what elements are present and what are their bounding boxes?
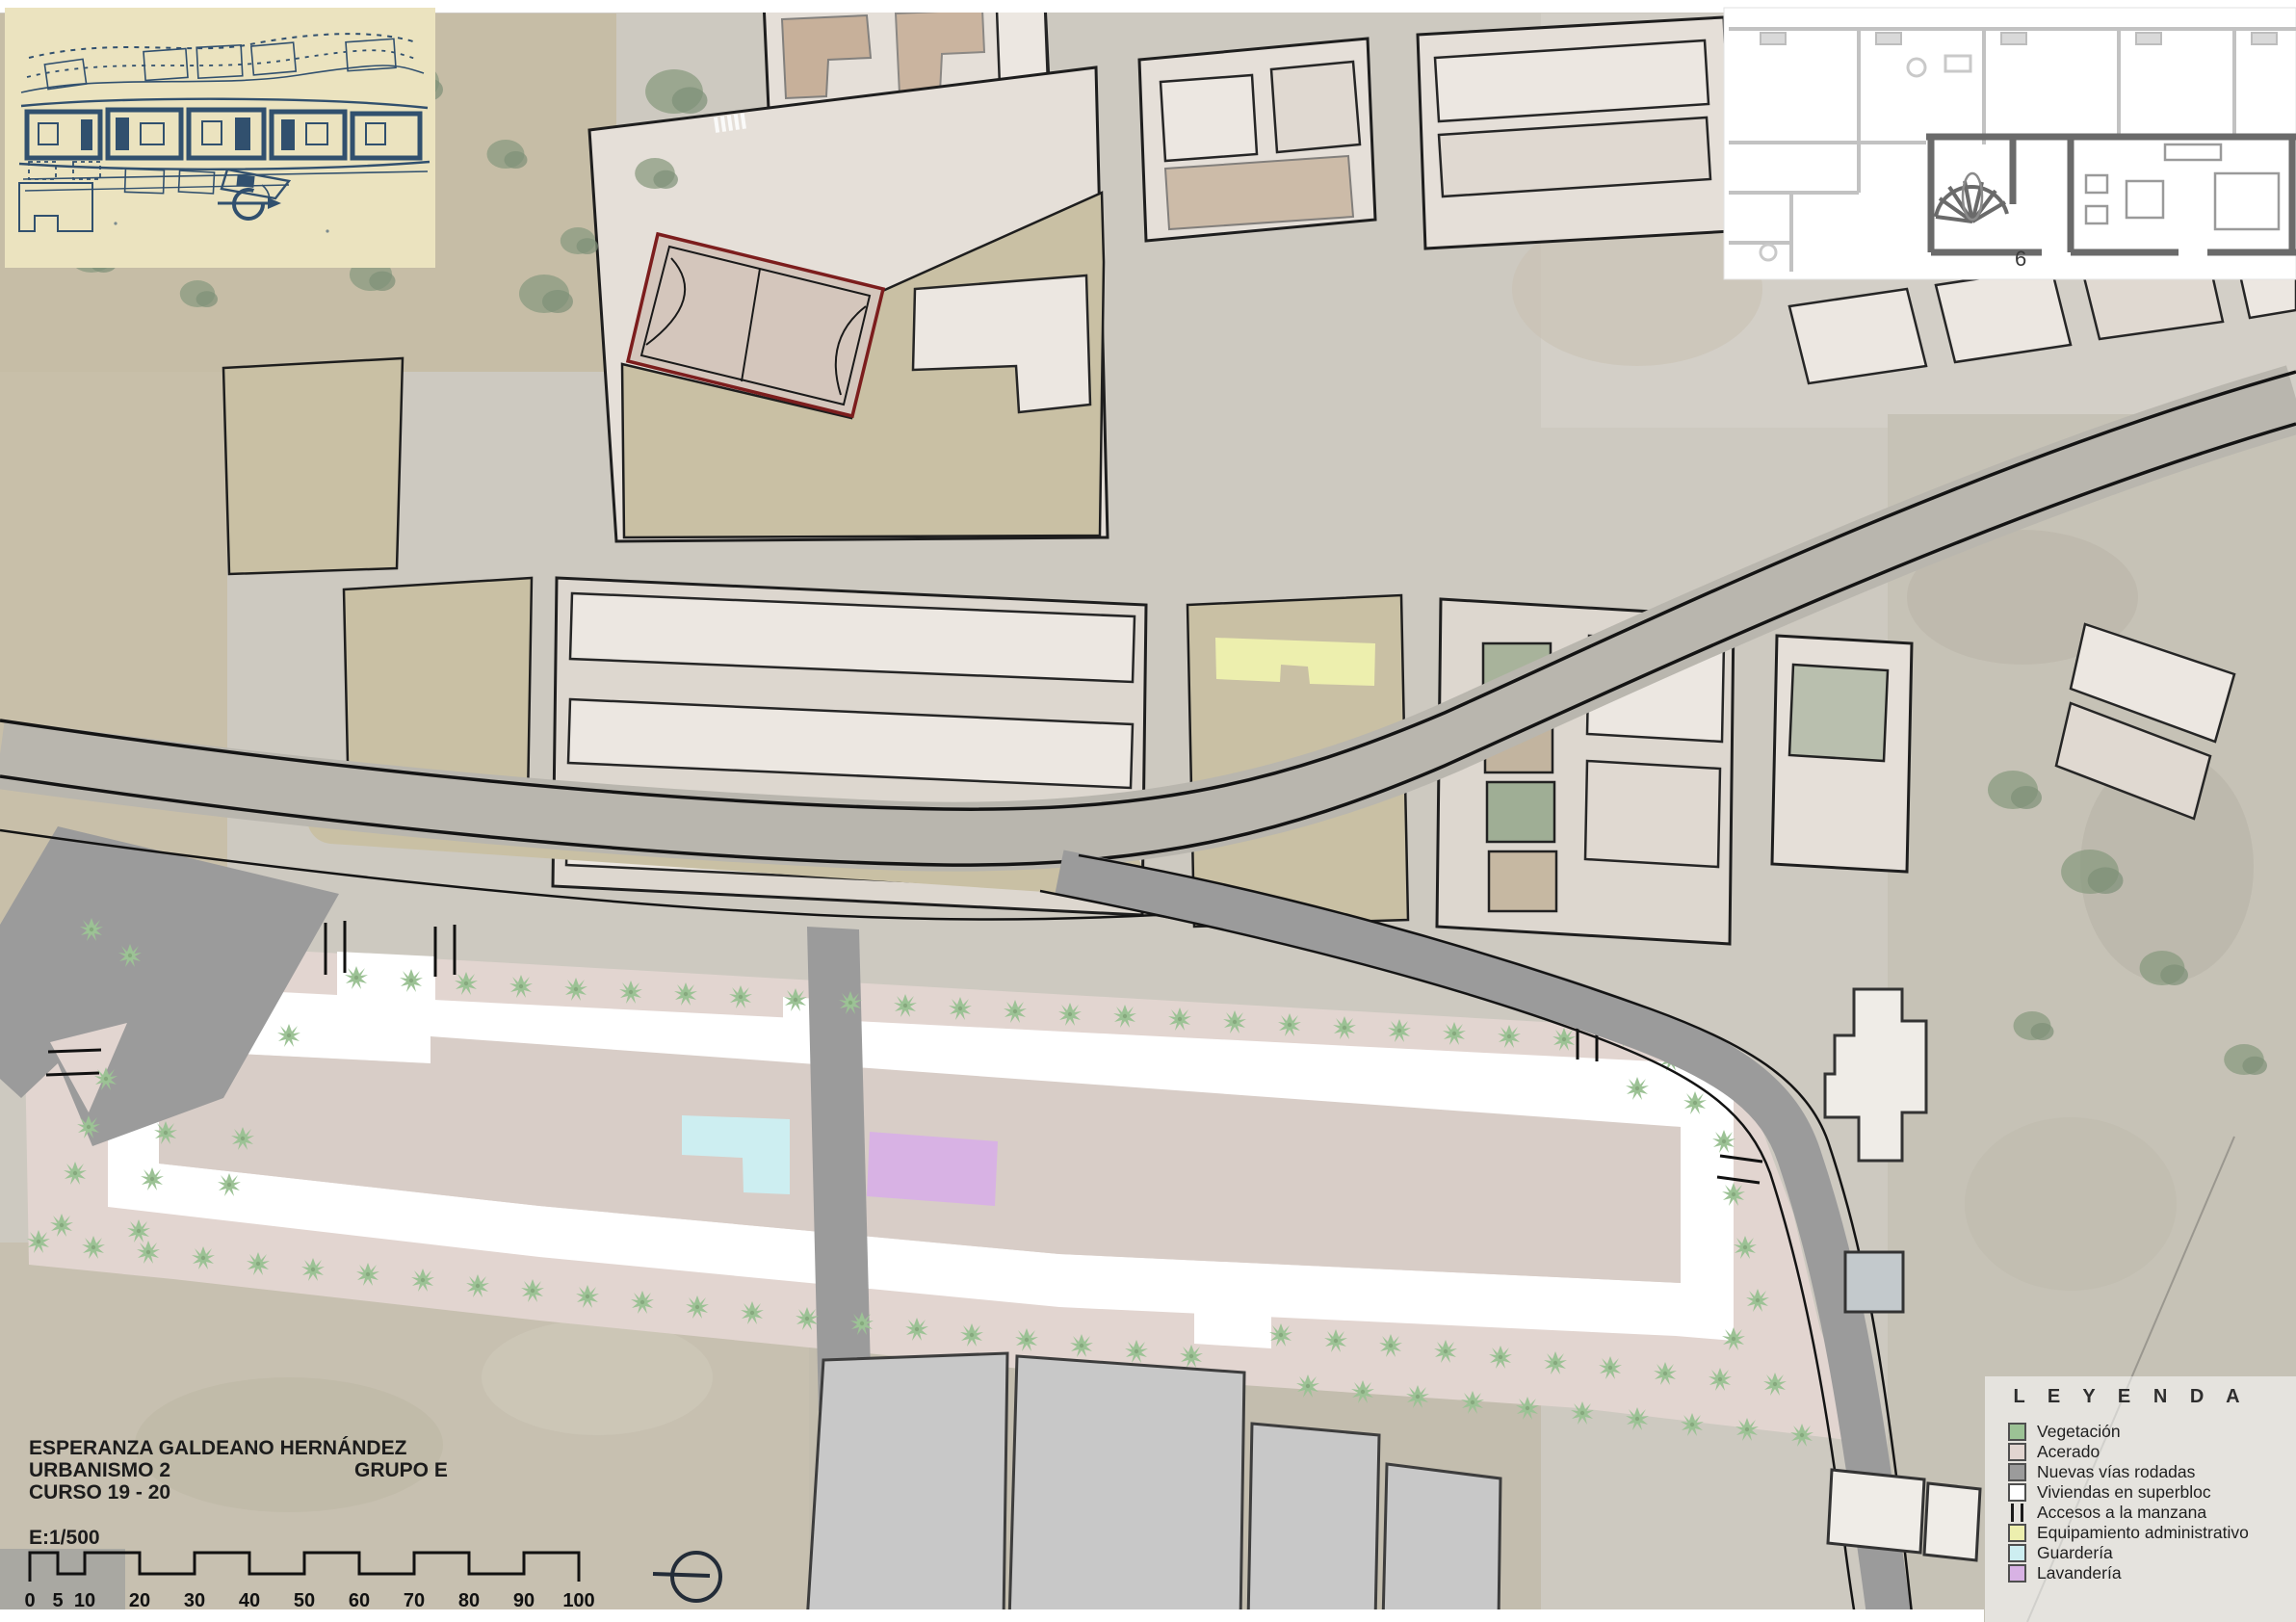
scale-tick: 40 (239, 1590, 260, 1611)
scale-tick: 10 (74, 1590, 95, 1611)
scale-label: E:1/500 (29, 1527, 100, 1550)
sidewalk-swatch-icon (2008, 1443, 2026, 1461)
legend-item-acerado: Acerado (2008, 1442, 2296, 1461)
block-mid-east (1772, 636, 1912, 872)
scale-tick: 80 (458, 1590, 480, 1611)
scale-tick: 100 (562, 1590, 594, 1611)
scale-tick: 60 (349, 1590, 370, 1611)
roads-swatch-icon (2008, 1463, 2026, 1481)
scale-tick: 70 (404, 1590, 425, 1611)
legend-title: L E Y E N D A (2008, 1386, 2296, 1408)
housing-swatch-icon (2008, 1483, 2026, 1502)
sketch-inset (5, 8, 435, 268)
site-plan-map: 6 0 5 10 20 30 40 50 60 70 80 90 100 (0, 0, 2296, 1622)
legend-panel: L E Y E N D A Vegetación Acerado Nuevas … (1985, 1376, 2296, 1622)
nursery-swatch-icon (2008, 1544, 2026, 1562)
laundry-building (867, 1132, 998, 1206)
legend-item-equipamiento: Equipamiento administrativo (2008, 1523, 2296, 1542)
year-line: CURSO 19 - 20 (29, 1481, 406, 1504)
scale-tick: 90 (513, 1590, 535, 1611)
legend-item-lavanderia: Lavandería (2008, 1563, 2296, 1583)
scale-tick: 30 (184, 1590, 205, 1611)
site-plan-board: 6 0 5 10 20 30 40 50 60 70 80 90 100 ESP… (0, 0, 2296, 1622)
access-bars-icon (2008, 1504, 2026, 1522)
title-block: ESPERANZA GALDEANO HERNÁNDEZ URBANISMO 2… (29, 1437, 406, 1504)
scale-tick: 5 (52, 1590, 63, 1611)
legend-item-guarderia: Guardería (2008, 1543, 2296, 1562)
empty-parcel (223, 358, 403, 574)
group-label: GRUPO E (354, 1459, 448, 1481)
legend-item-vegetacion: Vegetación (2008, 1422, 2296, 1441)
legend-item-viviendas: Viviendas en superbloc (2008, 1482, 2296, 1502)
author-name: ESPERANZA GALDEANO HERNÁNDEZ (29, 1437, 406, 1459)
floorplan-unit-label: 6 (2015, 247, 2026, 271)
vegetation-swatch-icon (2008, 1423, 2026, 1441)
laundry-swatch-icon (2008, 1564, 2026, 1583)
scale-tick: 0 (24, 1590, 35, 1611)
scale-tick: 50 (294, 1590, 315, 1611)
course-line: URBANISMO 2 (29, 1459, 406, 1481)
legend-item-accesos: Accesos a la manzana (2008, 1503, 2296, 1522)
scale-tick: 20 (129, 1590, 150, 1611)
equipment-swatch-icon (2008, 1524, 2026, 1542)
legend-item-vias: Nuevas vías rodadas (2008, 1462, 2296, 1481)
floorplan-inset: 6 (1724, 8, 2296, 279)
